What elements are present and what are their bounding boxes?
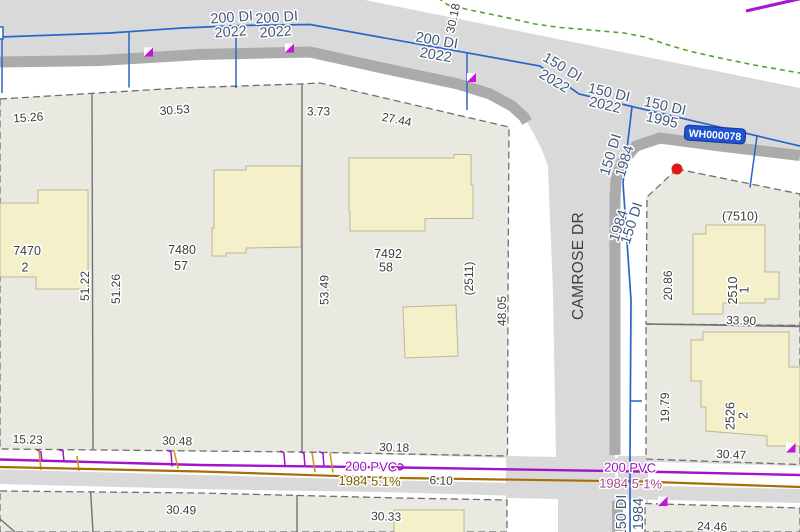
- svg-text:24.46: 24.46: [697, 519, 728, 532]
- svg-text:2526: 2526: [724, 402, 738, 430]
- svg-text:57: 57: [174, 259, 188, 273]
- svg-text:20.86: 20.86: [661, 270, 675, 300]
- svg-text:2: 2: [22, 261, 29, 275]
- svg-text:1984: 1984: [631, 498, 647, 530]
- svg-text:1984 5-1%: 1984 5-1%: [599, 475, 663, 491]
- svg-text:15.26: 15.26: [13, 109, 44, 125]
- svg-text:(7510): (7510): [722, 210, 758, 224]
- svg-text:1984 5.1%: 1984 5.1%: [338, 473, 401, 489]
- svg-text:2022: 2022: [259, 23, 292, 41]
- svg-text:30.53: 30.53: [159, 102, 190, 118]
- svg-text:CAMROSE DR: CAMROSE DR: [570, 212, 587, 320]
- svg-text:2: 2: [737, 412, 751, 419]
- svg-text:30.33: 30.33: [371, 509, 402, 524]
- svg-text:33.90: 33.90: [726, 313, 757, 328]
- svg-text:48.05: 48.05: [495, 296, 509, 326]
- svg-text:51.22: 51.22: [78, 271, 92, 301]
- svg-text:1: 1: [738, 286, 752, 293]
- svg-text:30.49: 30.49: [166, 502, 197, 517]
- svg-text:58: 58: [379, 261, 393, 275]
- svg-text:3.73: 3.73: [307, 105, 331, 119]
- svg-text:7492: 7492: [374, 247, 402, 261]
- svg-text:200 PVC: 200 PVC: [604, 460, 656, 476]
- svg-text:19.79: 19.79: [658, 392, 672, 422]
- svg-text:15.23: 15.23: [12, 432, 43, 447]
- svg-text:53.49: 53.49: [318, 275, 332, 305]
- svg-text:51.26: 51.26: [109, 274, 123, 304]
- svg-text:30.47: 30.47: [716, 447, 747, 463]
- svg-text:2022: 2022: [214, 23, 247, 41]
- svg-text:7480: 7480: [168, 243, 196, 257]
- svg-text:7470: 7470: [13, 244, 41, 258]
- svg-text:30.48: 30.48: [162, 433, 193, 448]
- svg-text:6.10: 6.10: [429, 473, 453, 488]
- svg-text:200 PVC: 200 PVC: [345, 459, 397, 475]
- svg-text:(2511): (2511): [462, 262, 476, 296]
- svg-text:30.18: 30.18: [379, 440, 410, 455]
- svg-text:150 DI: 150 DI: [614, 495, 630, 532]
